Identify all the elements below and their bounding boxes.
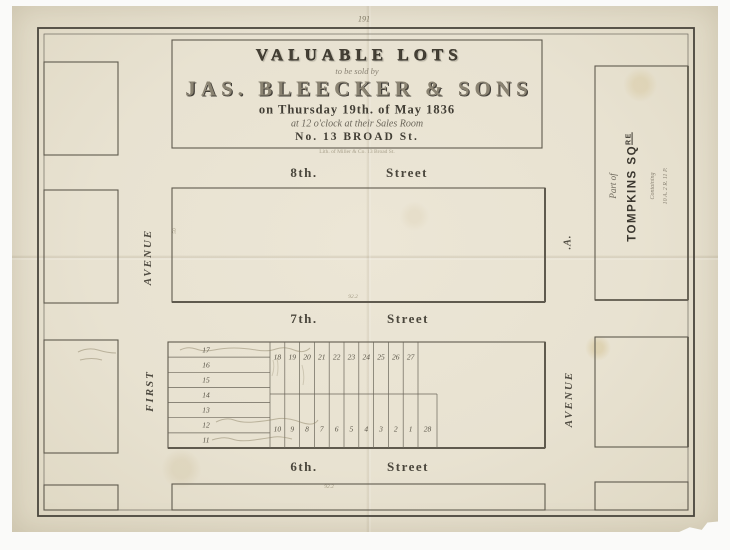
- scanned-map-sheet: 191 VALUABLE LOTS to be sold by JAS. BLE…: [0, 0, 730, 550]
- lot-number: 8: [305, 425, 309, 434]
- block-7th-6th-lots: [168, 342, 545, 448]
- lot-number: 28: [424, 425, 432, 434]
- lot-number: 15: [202, 375, 210, 384]
- street-label-7th-word: Street: [387, 311, 429, 327]
- tompkins-area: 10 A. 2 R. 11 P.: [663, 168, 669, 205]
- lot-number: 20: [303, 352, 311, 361]
- lot-number: 13: [202, 406, 210, 415]
- avenue-label-first-word: AVENUE: [142, 229, 154, 285]
- block-west-3: [44, 340, 118, 453]
- lot-number: 12: [202, 421, 210, 430]
- sale-address: No. 13 BROAD St.: [295, 131, 419, 143]
- lot-number: 22: [333, 352, 341, 361]
- lot-number: 25: [377, 352, 385, 361]
- street-label-6th-word: Street: [387, 459, 429, 475]
- lot-number: 2: [394, 425, 398, 434]
- block-west-4: [44, 485, 118, 510]
- street-label-7th: 7th.: [290, 311, 317, 327]
- dimension-label: 50: [172, 228, 178, 234]
- lot-number: 21: [318, 352, 326, 361]
- lot-number: 9: [290, 425, 294, 434]
- lot-number: 19: [288, 352, 296, 361]
- lot-number: 18: [274, 352, 282, 361]
- lot-number: 11: [203, 436, 210, 445]
- title-subline: to be sold by: [335, 66, 378, 76]
- lot-number: 23: [348, 352, 356, 361]
- lot-number: 24: [362, 352, 370, 361]
- lot-number: 1: [409, 425, 413, 434]
- title-headline: VALUABLE LOTS: [256, 45, 463, 65]
- lithographer-imprint: Lith. of Miller & Co. 13 Broad St.: [319, 149, 394, 155]
- sale-time: at 12 o'clock at their Sales Room: [291, 119, 423, 130]
- lot-number: 17: [202, 345, 210, 354]
- block-east-3: [595, 482, 688, 510]
- street-label-8th: 8th.: [290, 165, 317, 181]
- tompkins-part-of: Part of: [608, 173, 618, 198]
- avenue-a-letter: .A.: [563, 235, 574, 250]
- block-east-2: [595, 337, 688, 447]
- dimension-label: 92.2: [348, 294, 358, 300]
- lot-number: 27: [407, 352, 415, 361]
- block-west-2: [44, 190, 118, 303]
- avenue-label-first-name: FIRST: [144, 370, 156, 412]
- lot-number: 10: [274, 425, 282, 434]
- lot-number: 14: [202, 390, 210, 399]
- street-label-8th-word: Street: [386, 165, 428, 181]
- block-8th-7th: [172, 188, 545, 302]
- lot-number: 16: [202, 360, 210, 369]
- tompkins-containing: Containing: [650, 172, 656, 199]
- auctioneer-name: JAS. BLEECKER & SONS: [185, 77, 532, 102]
- tompkins-square-label: TOMPKINS SQRE: [626, 132, 639, 242]
- tompkins-square-sup: RE: [626, 132, 633, 145]
- lot-number: 3: [379, 425, 383, 434]
- sale-date: on Thursday 19th. of May 1836: [259, 103, 455, 118]
- lot-number: 26: [392, 352, 400, 361]
- lot-number: 7: [320, 425, 324, 434]
- avenue-a-word: AVENUE: [563, 371, 575, 427]
- lot-number: 6: [335, 425, 339, 434]
- page-number: 191: [358, 15, 370, 24]
- block-below-6th: [172, 484, 545, 510]
- block-west-1: [44, 62, 118, 155]
- lot-number: 5: [350, 425, 354, 434]
- street-label-6th: 6th.: [290, 459, 317, 475]
- dimension-label: 92.2: [324, 484, 334, 490]
- tompkins-square-name: TOMPKINS SQ: [626, 145, 638, 242]
- lot-number: 4: [364, 425, 368, 434]
